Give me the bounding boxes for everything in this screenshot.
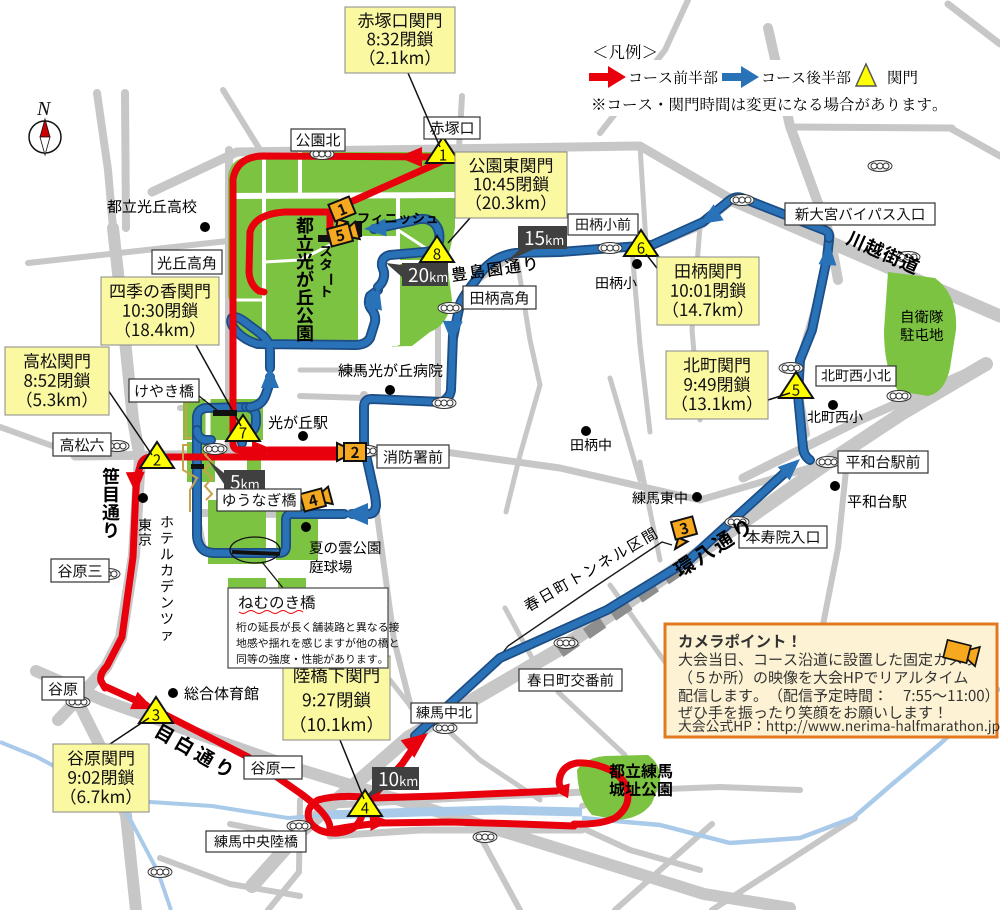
svg-text:N: N <box>36 98 52 120</box>
